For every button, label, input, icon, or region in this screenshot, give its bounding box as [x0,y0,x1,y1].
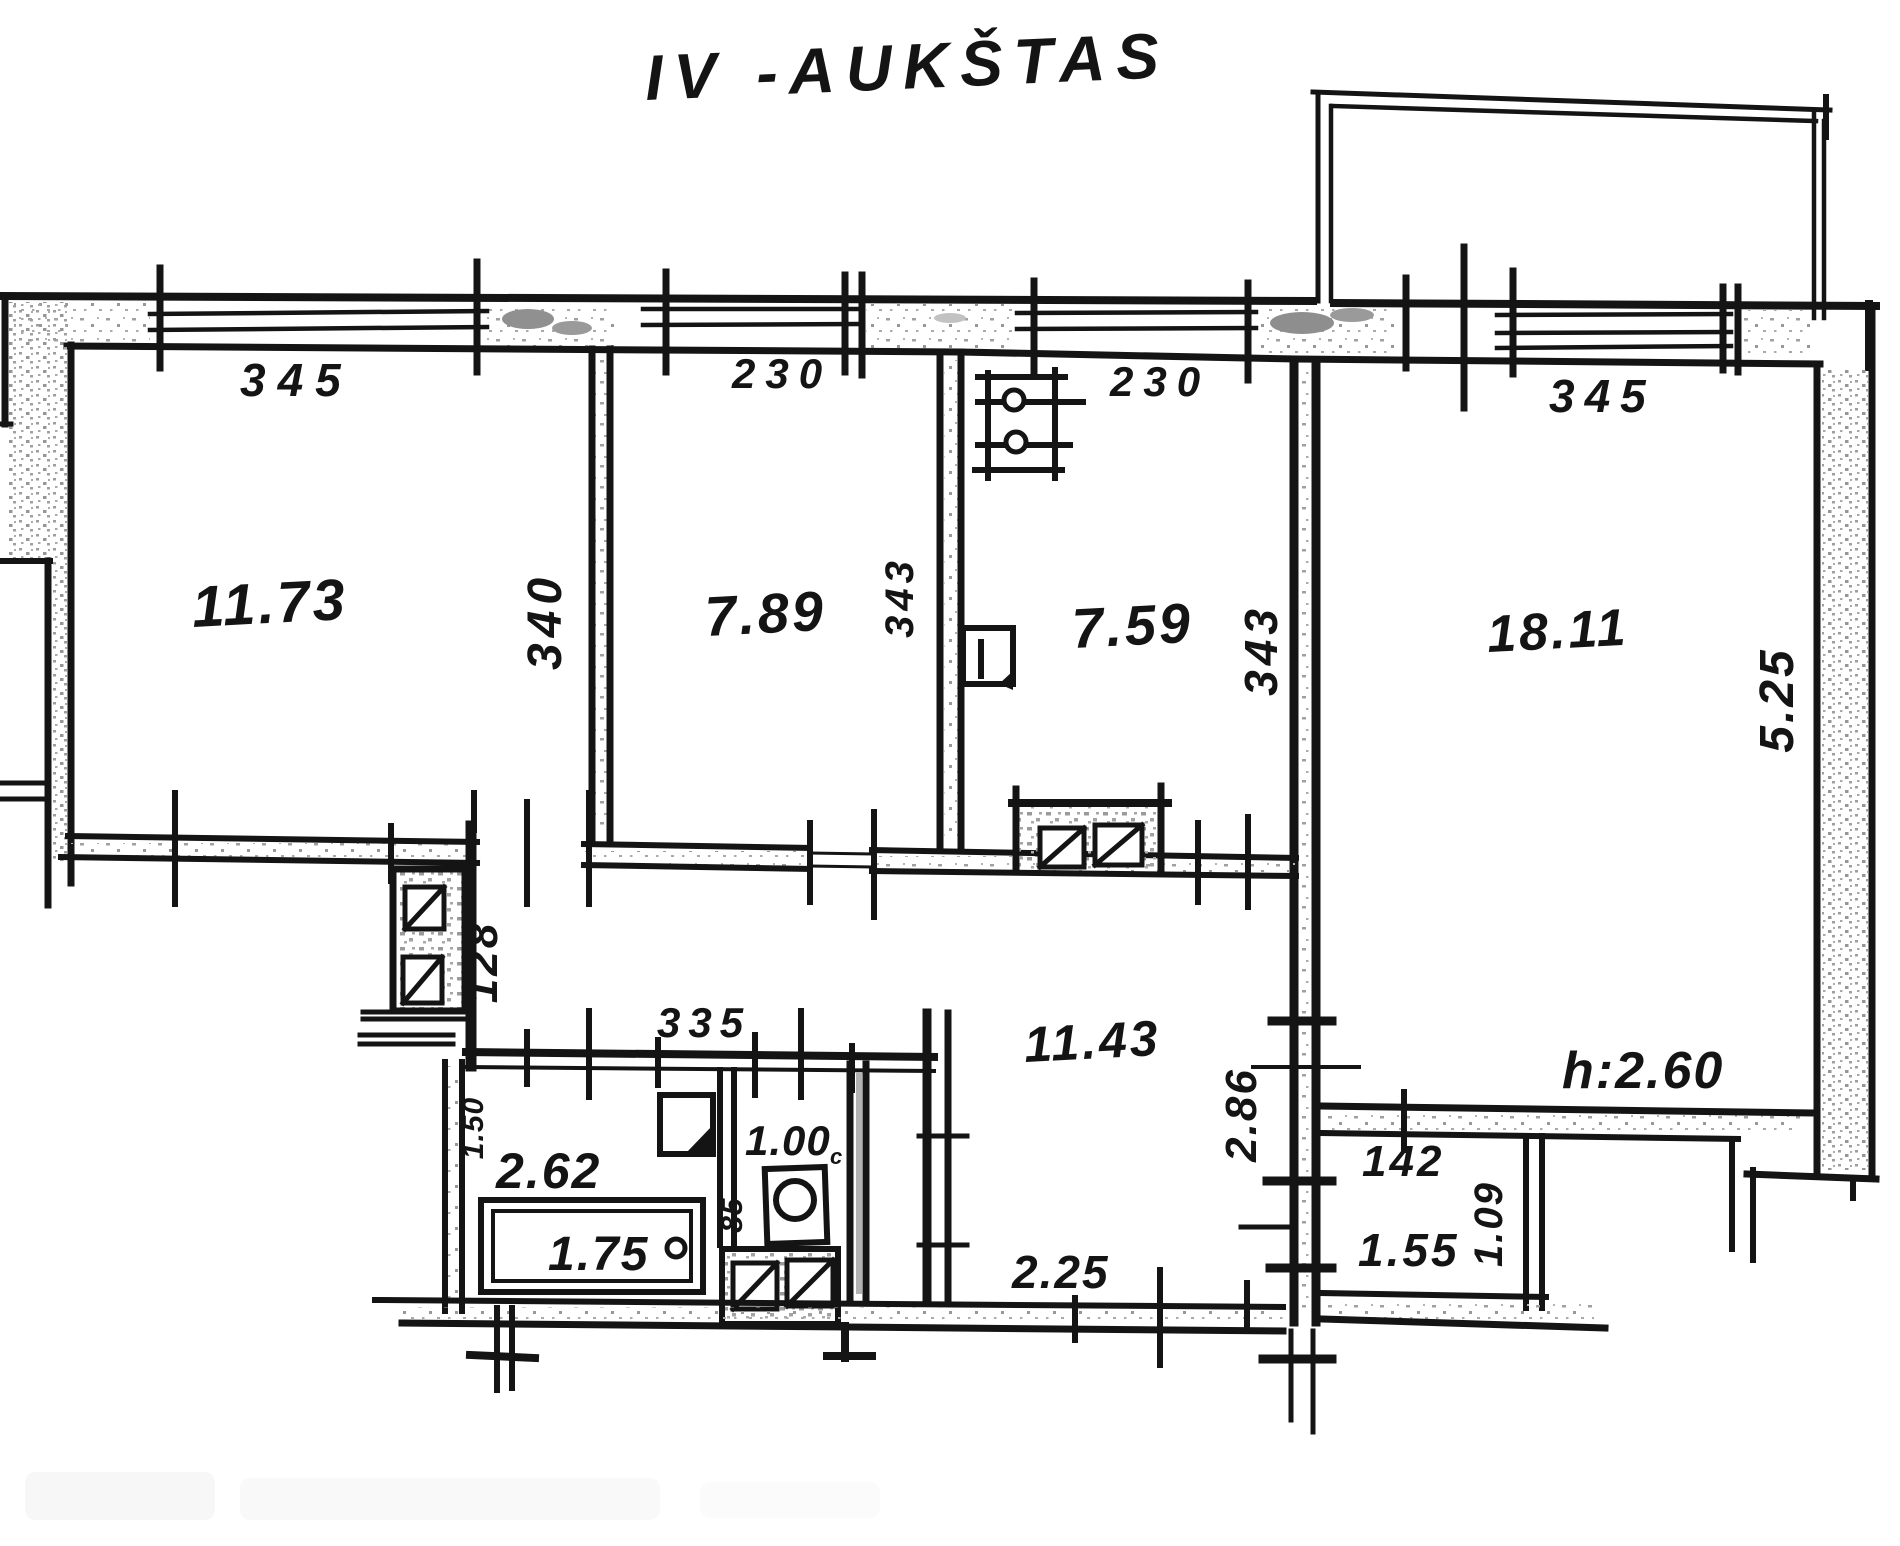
svg-text:230: 230 [731,350,832,397]
svg-text:340: 340 [519,572,572,670]
svg-text:7.59: 7.59 [1070,591,1194,660]
svg-text:345: 345 [240,354,353,406]
svg-text:1.00: 1.00 [745,1117,831,1164]
svg-text:1.50: 1.50 [457,1097,490,1159]
svg-text:18.11: 18.11 [1486,599,1630,664]
svg-text:2.62: 2.62 [495,1143,601,1199]
svg-text:230: 230 [1109,358,1210,405]
svg-text:345: 345 [1549,370,1656,422]
svg-text:85: 85 [716,1197,749,1233]
svg-text:1.09: 1.09 [1467,1181,1511,1267]
svg-text:128: 128 [458,921,507,1003]
svg-text:7.89: 7.89 [703,579,827,648]
svg-text:h:2.60: h:2.60 [1562,1042,1724,1100]
svg-text:11.43: 11.43 [1023,1010,1162,1073]
svg-text:1.75: 1.75 [548,1228,649,1281]
svg-text:343: 343 [1235,604,1287,696]
svg-text:335: 335 [657,999,751,1046]
svg-text:2.25: 2.25 [1011,1246,1110,1298]
svg-text:11.73: 11.73 [190,567,349,640]
svg-text:343: 343 [878,556,922,638]
svg-text:c: c [830,1144,842,1169]
svg-text:2.86: 2.86 [1217,1068,1266,1163]
svg-text:142: 142 [1362,1137,1444,1186]
svg-text:5.25: 5.25 [1751,647,1804,752]
svg-text:1.55: 1.55 [1358,1224,1460,1276]
